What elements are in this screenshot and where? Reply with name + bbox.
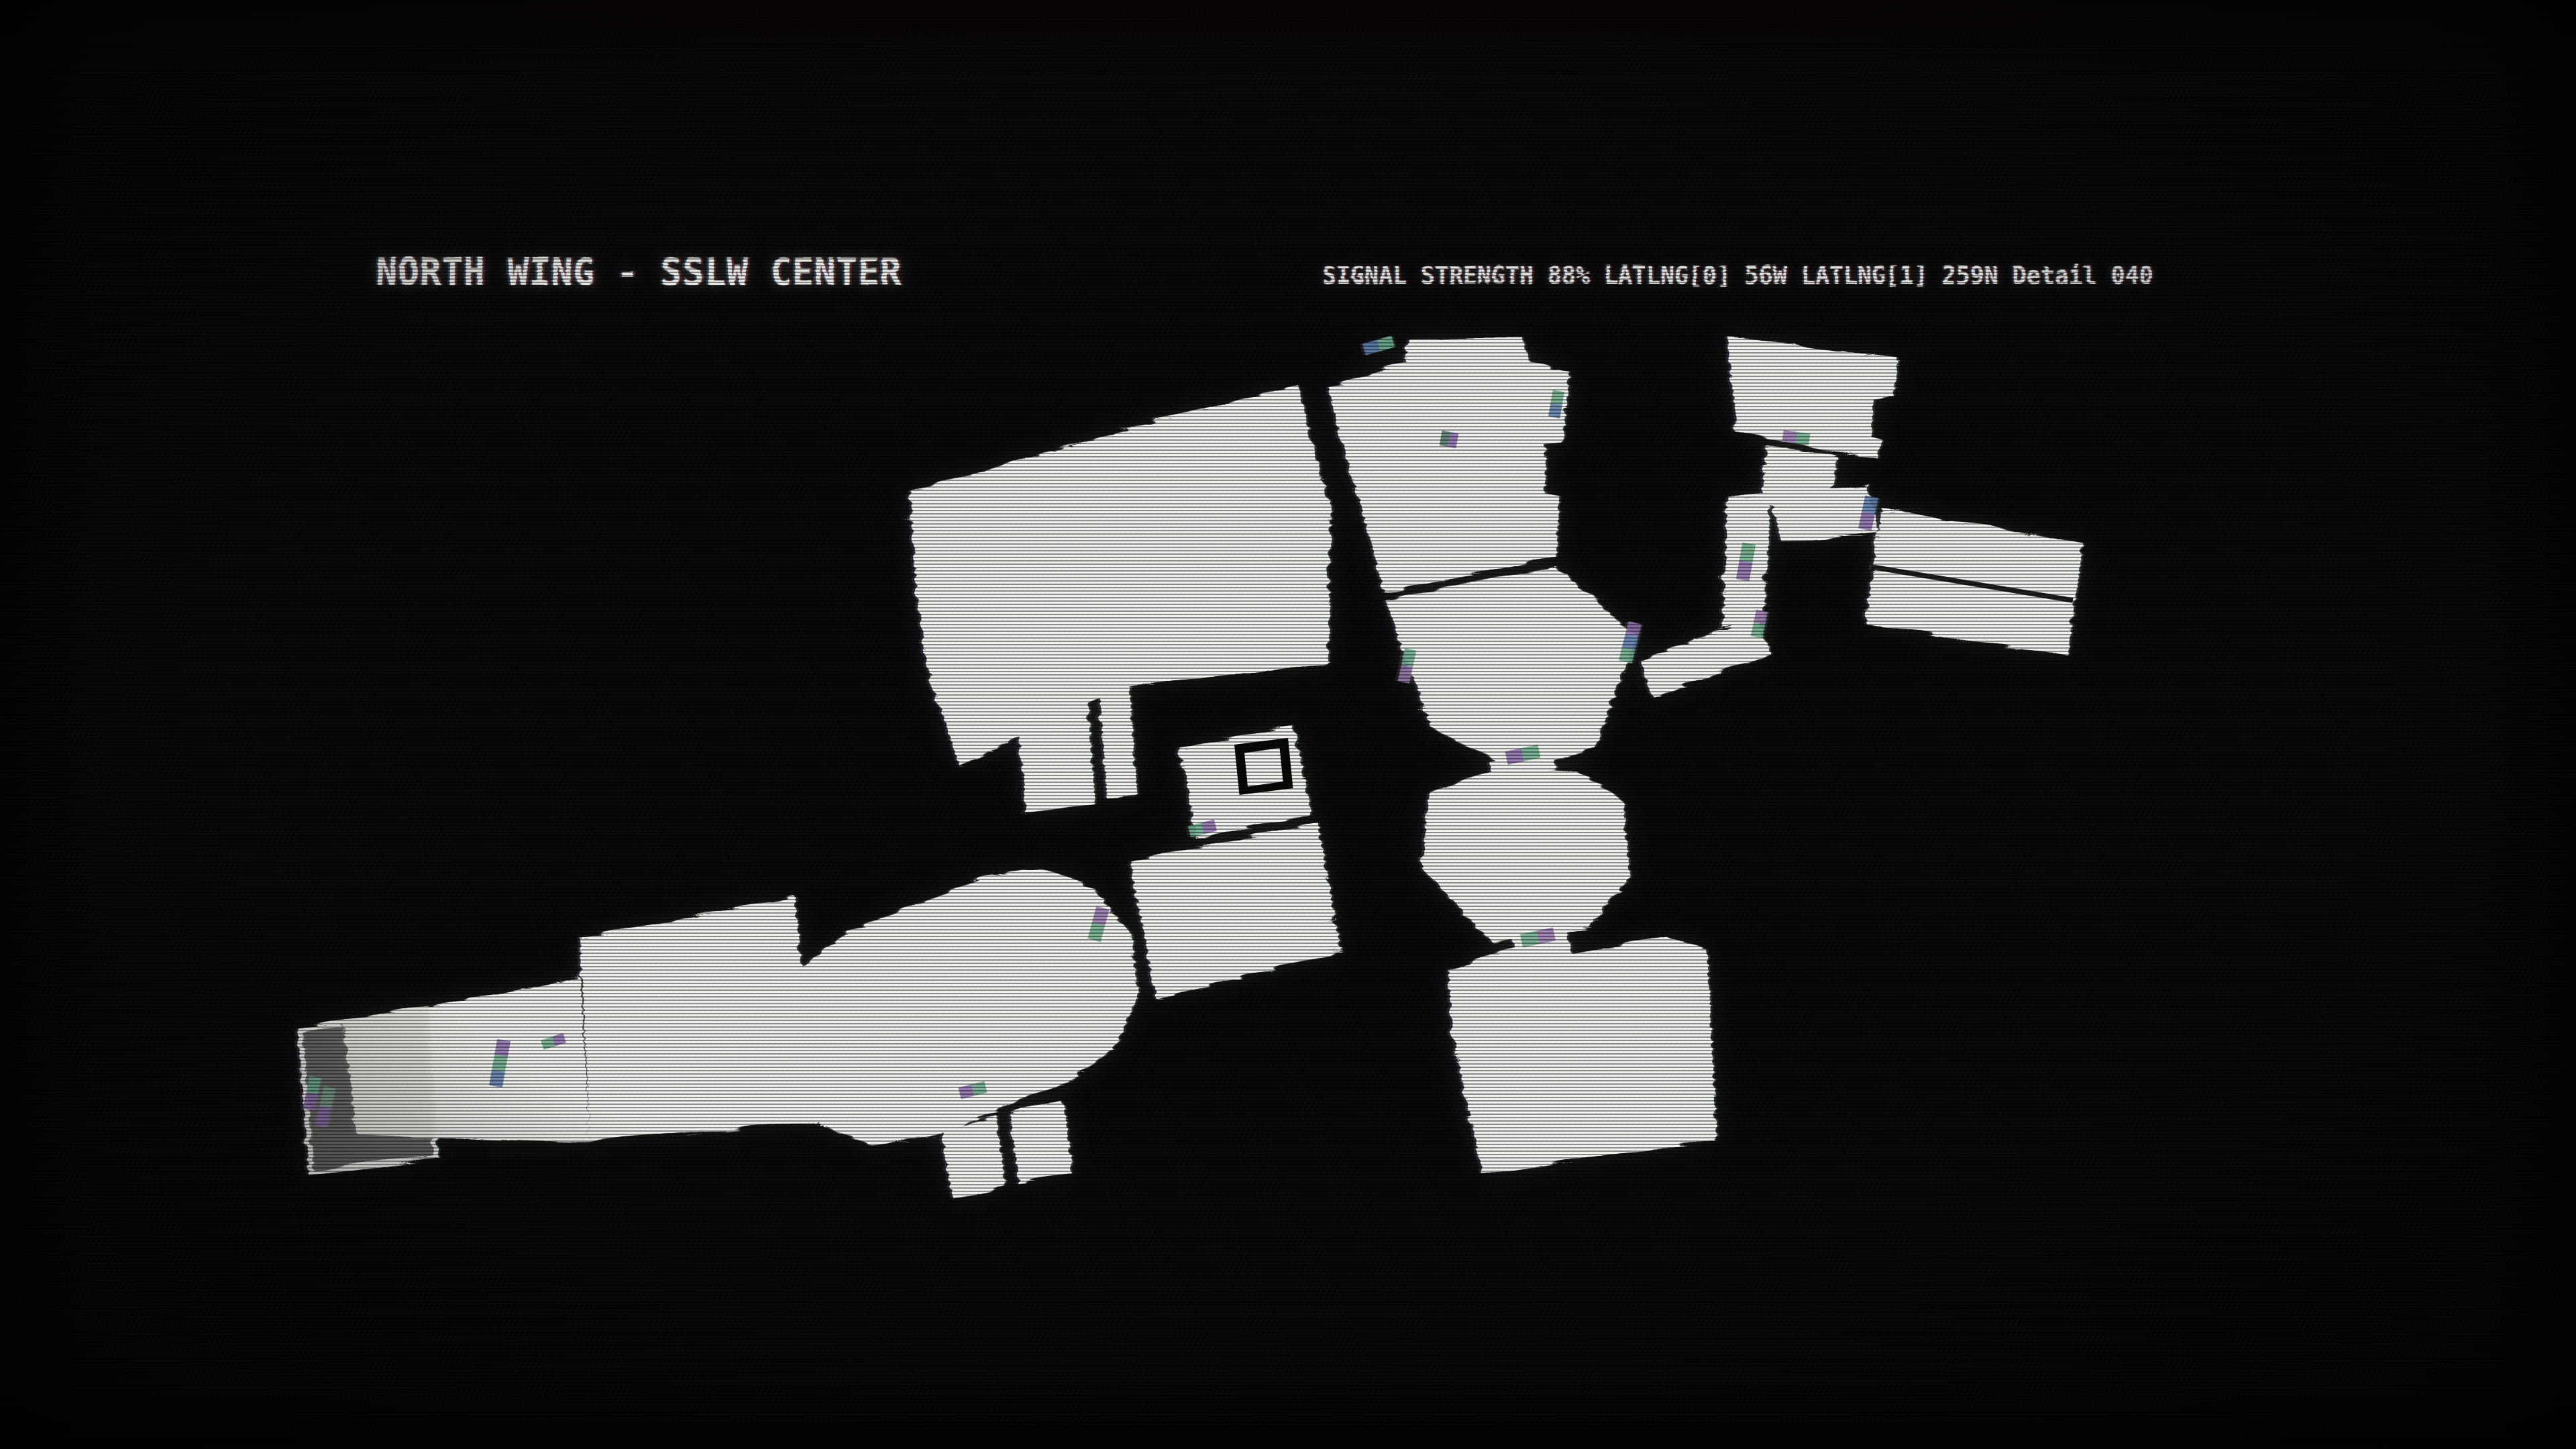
map-area (0, 0, 2576, 1449)
room-mid-a (1127, 820, 1338, 997)
room-north-hall (1325, 335, 1566, 590)
glitch-tick (1440, 431, 1459, 448)
pillar-cap (1244, 748, 1283, 787)
map-rooms-layer (341, 332, 2080, 1196)
status-readout: SIGNAL STRENGTH 88% LATLNG[0] 56W LATLNG… (1322, 261, 2152, 289)
map-title: NORTH WING - SSLW CENTER (374, 250, 901, 293)
glitch-tick-stripe (489, 1070, 505, 1087)
room-ne-link (1758, 443, 1835, 513)
glitch-tick (1362, 335, 1395, 355)
glitch-tick-stripe (1795, 432, 1810, 445)
glitch-tick-stripe (1782, 430, 1796, 443)
crt-screen: NORTH WING - SSLW CENTER SIGNAL STRENGTH… (0, 0, 2576, 1449)
glitch-tick-stripe (492, 1055, 508, 1072)
stub-nw-b (1095, 673, 1134, 796)
room-south-b (1446, 932, 1714, 1171)
room-pill-hall (775, 865, 1136, 1142)
stub-nw-a (1013, 673, 1092, 810)
glitch-tick-stripe (1398, 665, 1413, 684)
facility-map (0, 0, 2576, 1449)
corridor-east-a (1637, 614, 1768, 694)
room-south-a (1419, 768, 1627, 939)
stub-south-a (939, 1114, 1003, 1196)
room-central (1382, 563, 1633, 768)
glitch-tick-stripe (1362, 340, 1380, 356)
glitch-tick-stripe (1188, 823, 1204, 838)
stub-south-b (1006, 1097, 1070, 1181)
room-east-grand (1864, 506, 2080, 654)
glitch-tick-stripe (494, 1039, 511, 1057)
glitch-tick-stripe (1550, 390, 1564, 405)
glitch-tick-stripe (1377, 335, 1395, 351)
glitch-tick-stripe (1548, 403, 1562, 419)
